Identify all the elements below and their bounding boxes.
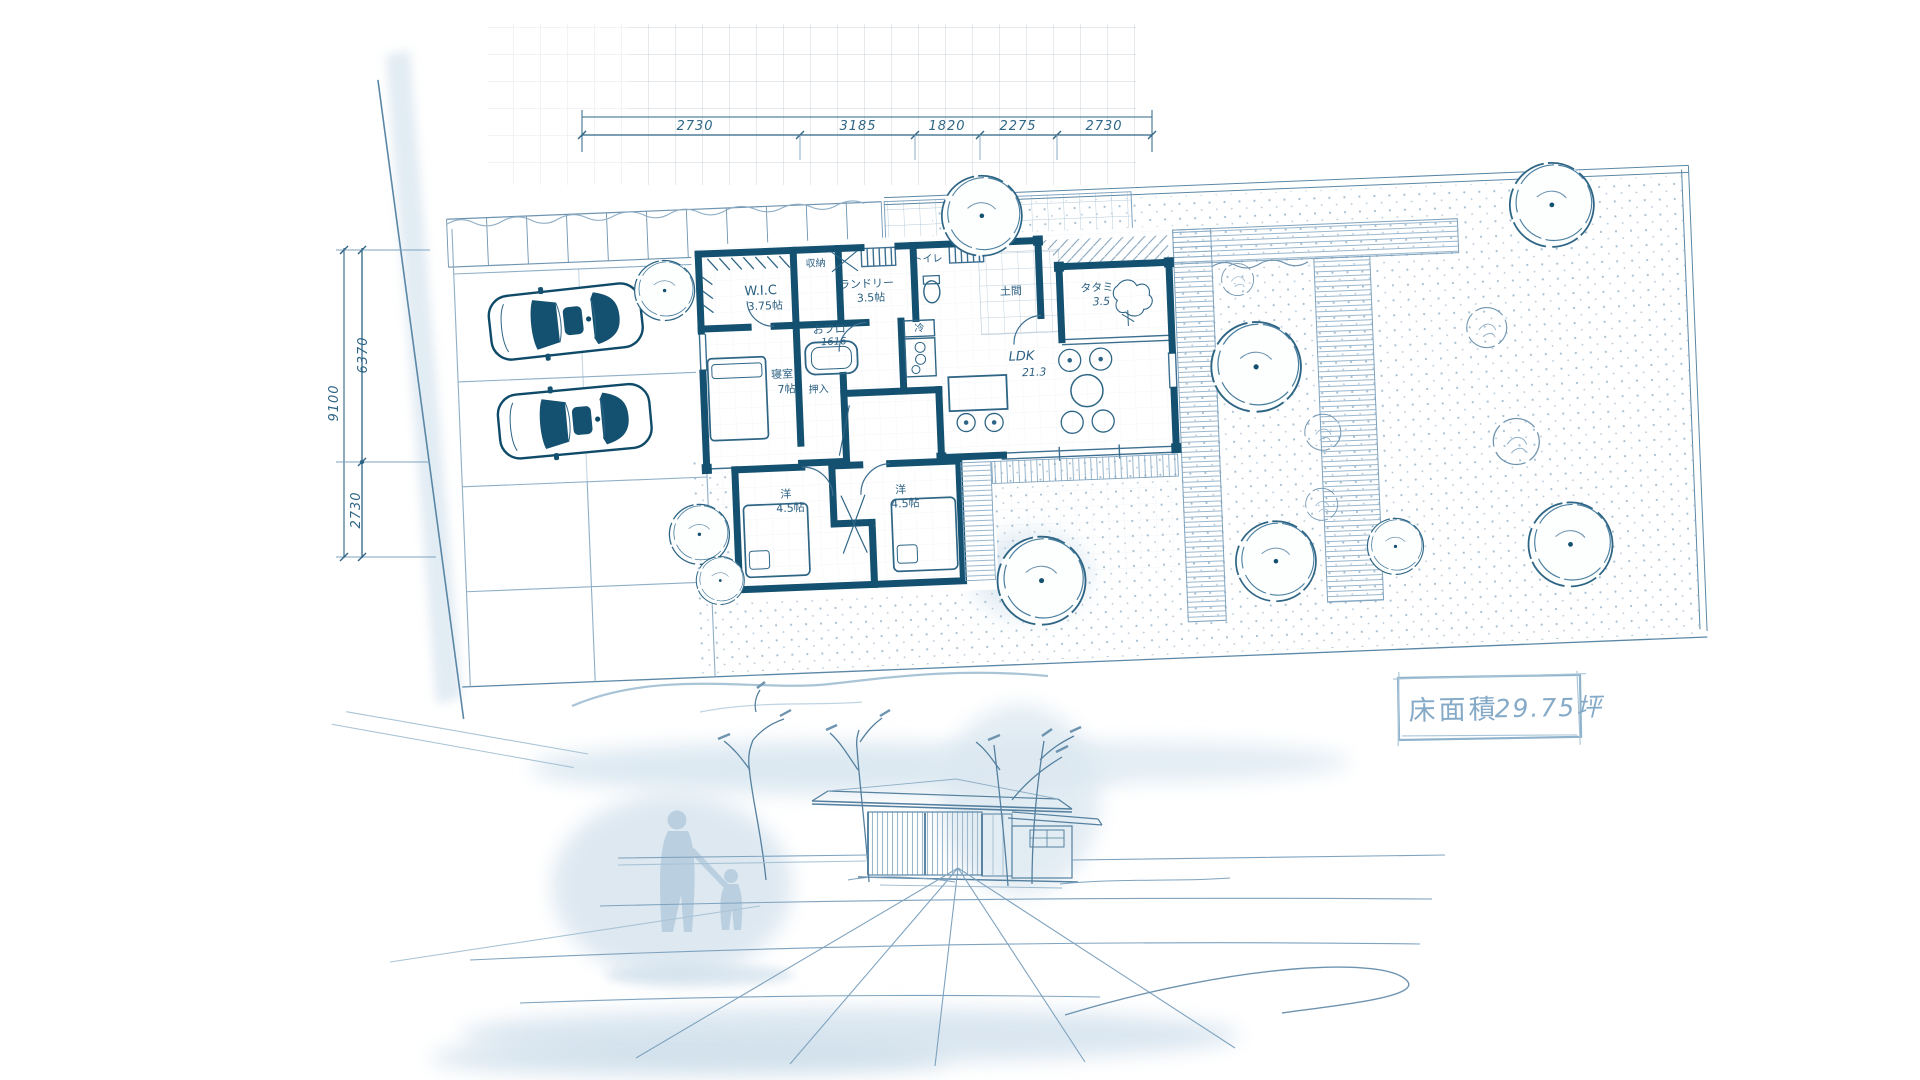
label-west-a-size: 4.5帖 xyxy=(776,501,805,515)
dim-top-2: 3185 xyxy=(839,119,876,134)
perspective-sketch xyxy=(390,673,1445,1066)
label-ldk-size: 21.3 xyxy=(1022,365,1047,379)
architectural-sketch: W.I.C 3.75帖 収納 ランドリー 3.5帖 トイレ 冷 おフロ 1616… xyxy=(0,0,1920,1080)
label-doma: 土間 xyxy=(1000,284,1023,298)
hedge-squiggle xyxy=(446,200,864,227)
background-grid xyxy=(488,24,1136,185)
label-west-b: 洋 xyxy=(895,482,907,496)
label-bedroom: 寝室 xyxy=(771,366,794,381)
dim-left-upper: 6370 xyxy=(356,336,371,373)
floor-area-value: 29.75坪 xyxy=(1494,692,1605,723)
label-closet-top: 収納 xyxy=(805,256,826,270)
dim-left-lower: 2730 xyxy=(349,491,364,528)
label-laundry: ランドリー xyxy=(839,276,894,291)
dimension-left-labels: 9100 6370 2730 xyxy=(327,336,371,528)
label-toilet: トイレ xyxy=(912,253,942,265)
dim-top-1: 2730 xyxy=(676,119,713,134)
dim-left-total: 9100 xyxy=(327,384,342,421)
sketch-canvas: W.I.C 3.75帖 収納 ランドリー 3.5帖 トイレ 冷 おフロ 1616… xyxy=(0,0,1920,1080)
car-1 xyxy=(486,276,645,366)
dim-top-4: 2275 xyxy=(999,119,1036,134)
dim-top-5: 2730 xyxy=(1085,119,1122,134)
label-bath: おフロ xyxy=(813,322,846,336)
label-west-a: 洋 xyxy=(780,487,792,501)
label-fridge: 冷 xyxy=(914,321,925,334)
label-tatami: タタミ xyxy=(1080,281,1113,295)
floor-area-box: 床面積 29.75坪 xyxy=(1393,668,1606,748)
label-bedroom-size: 7帖 xyxy=(777,382,796,396)
floor-plan: W.I.C 3.75帖 収納 ランドリー 3.5帖 トイレ 冷 おフロ 1616… xyxy=(693,230,1189,597)
label-west-b-size: 4.5帖 xyxy=(891,496,920,510)
veranda-east xyxy=(961,462,996,581)
label-laundry-size: 3.5帖 xyxy=(857,291,886,305)
label-tatami-size: 3.5 xyxy=(1092,295,1110,309)
label-wic-size: 3.75帖 xyxy=(747,299,783,313)
dim-top-3: 1820 xyxy=(928,119,965,134)
label-ldk: LDK xyxy=(1008,349,1036,365)
label-bath-size: 1616 xyxy=(821,336,847,348)
label-oshiire: 押入 xyxy=(808,382,829,396)
car-2 xyxy=(496,377,654,465)
label-wic: W.I.C xyxy=(744,283,777,299)
floor-area-label: 床面積 xyxy=(1408,694,1499,727)
